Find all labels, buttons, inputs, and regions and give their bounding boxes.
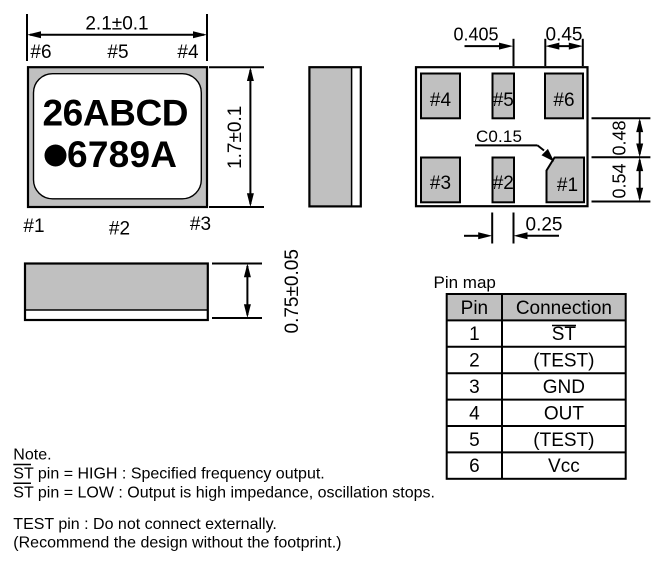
svg-text:6789A: 6789A xyxy=(67,134,177,175)
svg-text:6: 6 xyxy=(469,456,480,477)
svg-text:3: 3 xyxy=(469,377,480,398)
svg-text:OUT: OUT xyxy=(544,403,585,424)
svg-text:26ABCD: 26ABCD xyxy=(43,93,189,134)
svg-text:Vcc: Vcc xyxy=(548,456,580,477)
svg-text:1.7±0.1: 1.7±0.1 xyxy=(225,106,246,169)
svg-text:0.48: 0.48 xyxy=(610,120,630,155)
svg-text:Pin: Pin xyxy=(461,298,488,319)
svg-text:#4: #4 xyxy=(177,42,199,63)
svg-text:(TEST): (TEST) xyxy=(533,351,594,372)
svg-text:4: 4 xyxy=(469,403,480,424)
svg-text:0.75±0.05: 0.75±0.05 xyxy=(282,249,303,333)
svg-text:#6: #6 xyxy=(30,42,51,63)
svg-text:(Recommend the design without: (Recommend the design without the footpr… xyxy=(13,534,341,551)
svg-text:#3: #3 xyxy=(190,214,211,235)
svg-text:GND: GND xyxy=(543,377,585,398)
svg-text:5: 5 xyxy=(469,430,480,451)
svg-text:0.54: 0.54 xyxy=(610,163,630,198)
svg-text:#5: #5 xyxy=(493,90,514,111)
svg-text:ST pin = HIGH : Specified freq: ST pin = HIGH : Specified frequency outp… xyxy=(13,466,324,483)
svg-text:TEST pin : Do not connect exte: TEST pin : Do not connect externally. xyxy=(13,516,277,533)
svg-text:Pin map: Pin map xyxy=(434,273,496,292)
svg-text:#3: #3 xyxy=(430,173,451,194)
svg-text:#2: #2 xyxy=(493,173,514,194)
svg-text:ST pin = LOW : Output is high: ST pin = LOW : Output is high impedance,… xyxy=(13,485,435,502)
svg-text:#6: #6 xyxy=(553,90,574,111)
svg-text:Note.: Note. xyxy=(13,446,51,463)
svg-text:1: 1 xyxy=(469,324,480,345)
svg-text:0.405: 0.405 xyxy=(453,24,498,44)
svg-text:#2: #2 xyxy=(109,219,130,240)
svg-text:2: 2 xyxy=(469,351,480,372)
svg-text:(TEST): (TEST) xyxy=(533,430,594,451)
svg-text:C0.15: C0.15 xyxy=(476,127,522,146)
svg-text:2.1±0.1: 2.1±0.1 xyxy=(85,14,148,35)
svg-text:0.25: 0.25 xyxy=(526,215,563,236)
svg-text:Connection: Connection xyxy=(516,298,612,319)
svg-text:ST: ST xyxy=(552,324,577,345)
svg-text:#1: #1 xyxy=(557,175,578,196)
svg-text:#4: #4 xyxy=(430,90,452,111)
svg-text:#1: #1 xyxy=(23,216,44,237)
svg-text:0.45: 0.45 xyxy=(546,24,583,45)
svg-text:#5: #5 xyxy=(107,42,128,63)
